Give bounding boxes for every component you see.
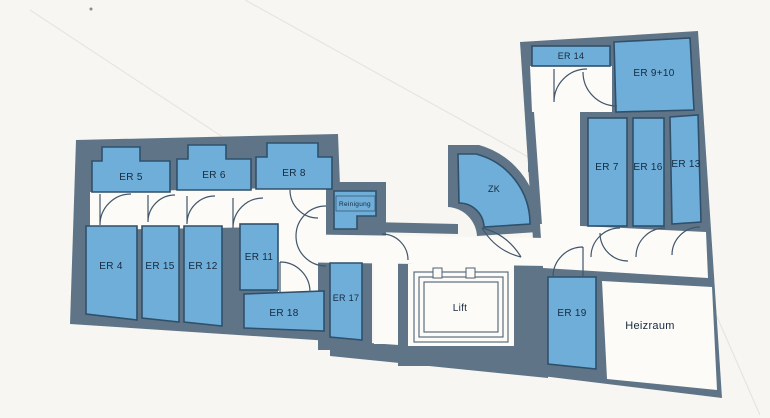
room-er19-shape [548, 277, 596, 369]
floor-mid-corridor [280, 234, 548, 266]
room-label-reinigung: Reinigung [339, 201, 371, 208]
room-label-er12: ER 12 [188, 261, 217, 272]
room-label-er18: ER 18 [269, 308, 298, 319]
room-label-er19: ER 19 [557, 308, 586, 319]
room-label-er14: ER 14 [558, 51, 585, 61]
room-label-zk: ZK [488, 184, 500, 194]
room-label-er8: ER 8 [282, 168, 306, 179]
room-label-lift: Lift [453, 303, 468, 314]
floor-plan-svg: ER 5 ER 6 ER 8 ER 4 ER 15 ER 12 ER 11 ER… [0, 0, 770, 418]
room-label-er5: ER 5 [119, 172, 143, 183]
room-label-er6: ER 6 [202, 170, 226, 181]
lift-door-tick [466, 268, 475, 278]
room-label-er11: ER 11 [245, 252, 274, 263]
room-label-er7: ER 7 [595, 162, 619, 173]
room-er4-shape [86, 226, 137, 320]
room-label-er15: ER 15 [145, 261, 174, 272]
room-er15-shape [142, 226, 179, 322]
room-er12-shape [184, 226, 222, 326]
room-label-er4: ER 4 [99, 261, 123, 272]
room-label-er13: ER 13 [671, 159, 700, 170]
room-label-er910: ER 9+10 [633, 68, 674, 79]
lift-door-tick [433, 268, 442, 278]
room-label-heizraum: Heizraum [625, 320, 674, 332]
floor-heizraum [602, 281, 717, 390]
wall-corridor-top [372, 222, 458, 234]
floor-lift-lobby-left [374, 262, 398, 344]
room-label-er17: ER 17 [333, 293, 360, 303]
floor-plan-page: ER 5 ER 6 ER 8 ER 4 ER 15 ER 12 ER 11 ER… [0, 0, 770, 418]
room-label-er16: ER 16 [633, 162, 662, 173]
